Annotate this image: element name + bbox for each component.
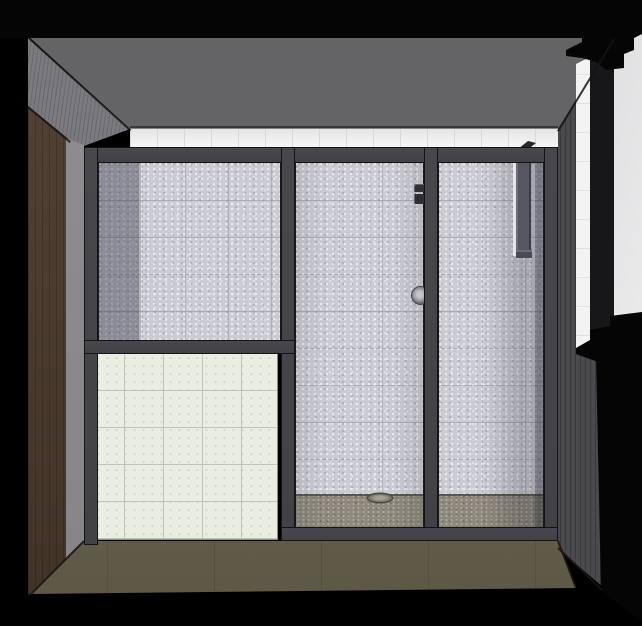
white-tile-strip <box>130 128 558 147</box>
shower-glass-panel-left <box>98 162 281 341</box>
shower-frame-right-stile <box>544 147 558 541</box>
shower-frame-bottom-rail <box>281 527 558 541</box>
shower-frame-half-wall-rail <box>84 340 295 354</box>
shower-glass-door <box>295 162 424 528</box>
tiled-half-wall <box>84 353 278 540</box>
shower-frame-mullion-right <box>424 147 438 541</box>
glass-left-shadow <box>99 163 280 340</box>
shower-frame-top-rail <box>84 147 558 163</box>
shower-glass-panel-right <box>438 162 544 528</box>
glass-center-shadow <box>296 163 423 527</box>
towel-bar <box>513 163 533 258</box>
bathroom-render-canvas <box>0 0 642 626</box>
towel-bar-foot <box>516 250 532 258</box>
towel-bar-body <box>516 163 531 258</box>
tile-strip-top-edge-line <box>130 126 558 128</box>
